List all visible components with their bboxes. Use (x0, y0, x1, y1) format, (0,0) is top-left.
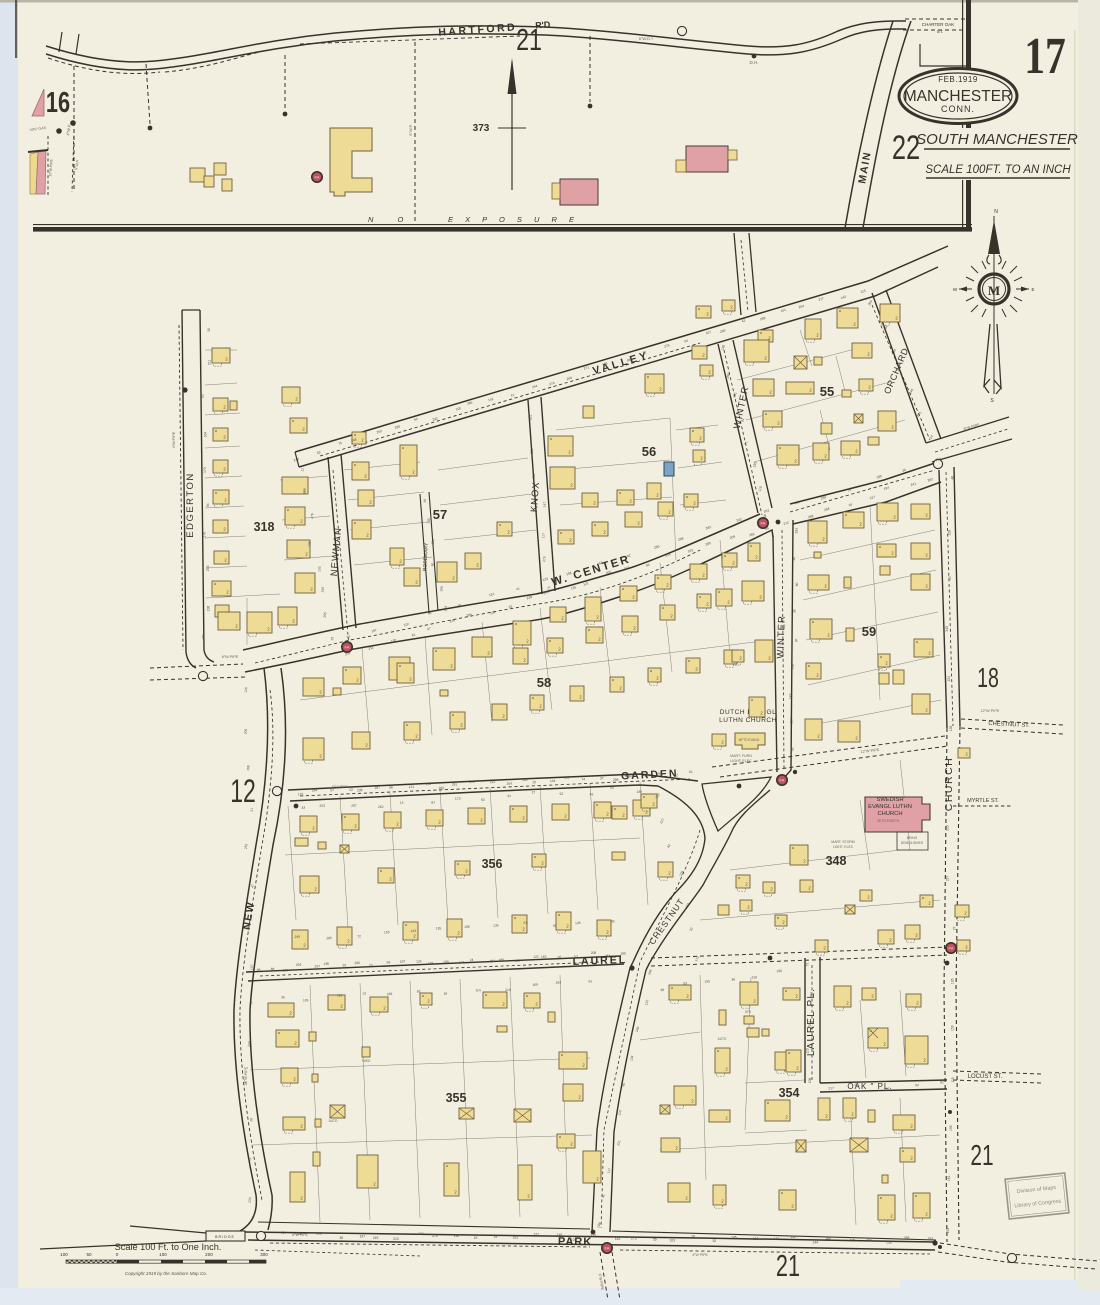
svg-text:127: 127 (533, 1233, 539, 1237)
svg-text:Copyright 1919 by the Sanborn: Copyright 1919 by the Sanborn Map Co. (125, 1271, 207, 1276)
svg-text:318: 318 (254, 520, 275, 534)
svg-text:GFS: GFS (745, 1010, 752, 1014)
svg-text:61: 61 (524, 921, 528, 925)
svg-text:33: 33 (330, 636, 334, 640)
svg-text:211: 211 (208, 360, 212, 365)
svg-text:254: 254 (605, 954, 611, 958)
svg-text:278: 278 (542, 556, 546, 562)
svg-text:219: 219 (505, 988, 511, 992)
svg-text:N: N (994, 209, 998, 215)
svg-text:137: 137 (250, 964, 254, 970)
svg-text:82: 82 (940, 1080, 944, 1084)
svg-text:62: 62 (674, 773, 678, 777)
svg-text:263: 263 (555, 980, 561, 984)
svg-text:56: 56 (387, 960, 391, 964)
svg-text:23: 23 (369, 963, 373, 967)
svg-text:270: 270 (547, 586, 551, 592)
svg-text:158: 158 (439, 586, 443, 592)
svg-text:SWEDISH: SWEDISH (876, 797, 903, 803)
svg-text:LIGHT: ELEC: LIGHT: ELEC (730, 759, 752, 763)
svg-text:53: 53 (574, 955, 578, 959)
svg-text:AUTO: AUTO (329, 1119, 338, 1123)
svg-text:94: 94 (206, 503, 210, 507)
svg-text:109: 109 (949, 1125, 953, 1131)
svg-text:BEING: BEING (907, 836, 918, 840)
svg-text:267: 267 (302, 489, 306, 495)
svg-text:207: 207 (351, 804, 357, 808)
svg-text:200: 200 (205, 1252, 213, 1257)
svg-text:245: 245 (294, 935, 300, 939)
svg-text:147: 147 (542, 502, 546, 508)
svg-text:135: 135 (436, 926, 442, 930)
svg-text:208: 208 (591, 951, 597, 955)
svg-text:121: 121 (409, 785, 415, 789)
svg-text:273: 273 (432, 1234, 438, 1238)
svg-text:300: 300 (260, 1252, 268, 1257)
svg-text:273: 273 (631, 1237, 637, 1241)
svg-text:18: 18 (691, 1234, 695, 1238)
svg-text:EDGERTON: EDGERTON (185, 472, 196, 538)
svg-text:SCALE 100FT. TO AN INCH: SCALE 100FT. TO AN INCH (925, 164, 1071, 176)
svg-text:115: 115 (951, 1077, 955, 1082)
svg-text:LOCUST ST.: LOCUST ST. (968, 1074, 1003, 1080)
svg-text:12″W PIPE: 12″W PIPE (981, 709, 1000, 713)
svg-text:89: 89 (340, 1236, 344, 1240)
svg-text:128: 128 (575, 921, 581, 925)
svg-text:50: 50 (86, 1252, 92, 1257)
svg-text:106: 106 (464, 925, 470, 929)
svg-text:238: 238 (357, 788, 363, 792)
svg-text:104: 104 (203, 432, 207, 438)
svg-text:MANCHESTER: MANCHESTER (904, 88, 1013, 105)
svg-text:159: 159 (951, 1025, 955, 1031)
svg-text:60: 60 (430, 562, 434, 566)
svg-text:12: 12 (230, 773, 256, 809)
svg-text:FA: FA (780, 778, 785, 783)
svg-text:192: 192 (454, 1234, 460, 1238)
svg-text:93: 93 (683, 981, 687, 985)
svg-text:259: 259 (296, 963, 302, 967)
svg-text:178: 178 (428, 961, 434, 965)
svg-text:56: 56 (642, 444, 656, 459)
svg-text:348: 348 (826, 854, 847, 868)
svg-text:28 TO EXIST’N: 28 TO EXIST’N (877, 819, 900, 823)
svg-text:MYRTLE ST.: MYRTLE ST. (967, 798, 999, 804)
svg-text:CONN.: CONN. (941, 104, 975, 114)
svg-text:170: 170 (298, 792, 304, 796)
svg-text:87: 87 (431, 801, 435, 805)
svg-text:10: 10 (557, 955, 561, 959)
svg-text:268: 268 (904, 1236, 910, 1240)
svg-text:153: 153 (201, 634, 205, 640)
svg-text:14: 14 (400, 801, 404, 805)
svg-text:204: 204 (506, 782, 512, 786)
svg-text:280: 280 (246, 925, 250, 931)
svg-text:196: 196 (776, 969, 782, 973)
svg-text:74: 74 (581, 777, 585, 781)
svg-text:204: 204 (810, 992, 814, 998)
svg-text:10: 10 (948, 576, 952, 580)
svg-text:213: 213 (393, 1237, 399, 1241)
svg-text:133: 133 (296, 1232, 302, 1236)
svg-text:24: 24 (470, 958, 474, 962)
svg-text:MART. STORM: MART. STORM (831, 840, 854, 844)
svg-text:49: 49 (423, 499, 427, 503)
svg-text:354: 354 (779, 1086, 800, 1100)
svg-text:6″W.D.?: 6″W.D.? (639, 36, 654, 41)
svg-text:62: 62 (553, 923, 557, 927)
svg-text:143: 143 (788, 693, 792, 699)
svg-text:DUTCH EVANGL: DUTCH EVANGL (720, 709, 776, 716)
svg-text:FA: FA (605, 1246, 610, 1251)
svg-text:230: 230 (469, 780, 475, 784)
svg-text:373: 373 (473, 123, 490, 134)
svg-text:285: 285 (326, 936, 332, 940)
svg-text:257: 257 (789, 718, 793, 724)
svg-text:92: 92 (343, 963, 347, 967)
svg-text:37: 37 (600, 776, 604, 780)
svg-text:87: 87 (249, 1000, 253, 1004)
svg-text:251: 251 (490, 959, 496, 963)
svg-text:264: 264 (439, 786, 445, 790)
svg-text:222: 222 (490, 780, 496, 784)
svg-text:6″W PIPE: 6″W PIPE (332, 785, 348, 789)
svg-text:27: 27 (531, 790, 535, 794)
svg-text:203: 203 (206, 565, 210, 571)
svg-text:29: 29 (443, 992, 447, 996)
svg-text:186: 186 (498, 958, 504, 962)
svg-text:61: 61 (588, 979, 592, 983)
svg-text:21: 21 (250, 808, 254, 812)
svg-text:109: 109 (443, 960, 449, 964)
svg-text:196: 196 (282, 968, 288, 972)
svg-text:147: 147 (774, 1237, 780, 1241)
svg-text:253: 253 (319, 804, 325, 808)
svg-text:262: 262 (378, 805, 384, 809)
svg-text:170: 170 (203, 467, 207, 473)
svg-text:73: 73 (806, 963, 810, 967)
svg-text:CHARTER OAK: CHARTER OAK (922, 22, 954, 27)
svg-text:155: 155 (704, 979, 710, 983)
svg-text:252: 252 (530, 448, 534, 454)
svg-text:173: 173 (455, 797, 461, 801)
svg-text:195: 195 (951, 978, 955, 984)
svg-text:FA: FA (315, 175, 320, 180)
svg-text:FEB.1919: FEB.1919 (938, 75, 978, 84)
svg-text:80: 80 (795, 582, 799, 586)
svg-text:189: 189 (387, 992, 393, 996)
svg-text:30: 30 (611, 919, 615, 923)
svg-text:82: 82 (417, 989, 421, 993)
svg-text:4″W PIPE: 4″W PIPE (692, 1253, 708, 1257)
svg-text:231: 231 (808, 1020, 812, 1026)
svg-text:SHED: SHED (362, 1059, 372, 1063)
svg-text:KNOX: KNOX (529, 481, 542, 513)
svg-text:6″W.PIPE: 6″W.PIPE (222, 655, 239, 659)
svg-text:46: 46 (951, 476, 955, 480)
svg-text:153: 153 (384, 930, 390, 934)
svg-text:57: 57 (433, 507, 447, 522)
svg-text:35: 35 (281, 995, 285, 999)
svg-text:52: 52 (713, 1239, 717, 1243)
svg-text:18: 18 (977, 663, 999, 694)
svg-text:36: 36 (731, 977, 735, 981)
svg-text:132: 132 (790, 1235, 796, 1239)
svg-text:136: 136 (426, 782, 432, 786)
svg-text:21: 21 (776, 1248, 800, 1283)
svg-text:96: 96 (389, 785, 393, 789)
svg-text:EVANGL LUTHN: EVANGL LUTHN (868, 804, 912, 810)
svg-text:57: 57 (330, 788, 334, 792)
svg-text:0: 0 (116, 1252, 119, 1257)
svg-text:248: 248 (443, 606, 447, 612)
svg-text:356: 356 (482, 857, 503, 871)
svg-text:206: 206 (243, 728, 247, 734)
svg-text:LIGHT. ELEC: LIGHT. ELEC (833, 845, 854, 849)
svg-text:FA: FA (761, 521, 766, 526)
svg-text:161: 161 (947, 1175, 951, 1181)
svg-text:38: 38 (207, 328, 211, 332)
svg-text:21: 21 (970, 1140, 993, 1172)
svg-text:101: 101 (866, 1239, 872, 1243)
svg-text:138: 138 (886, 1241, 892, 1245)
svg-text:4″W.PIPE: 4″W.PIPE (172, 431, 176, 448)
svg-text:61: 61 (689, 770, 693, 774)
svg-text:185: 185 (324, 962, 330, 966)
svg-text:107: 107 (645, 774, 651, 778)
svg-text:WINTER: WINTER (775, 615, 788, 659)
svg-text:93: 93 (658, 772, 662, 776)
svg-text:N O: N O (368, 215, 414, 224)
svg-text:130: 130 (317, 566, 321, 572)
svg-text:102: 102 (571, 1238, 577, 1242)
svg-text:M: M (988, 283, 1000, 298)
svg-text:126: 126 (459, 960, 465, 964)
svg-text:92: 92 (559, 792, 563, 796)
svg-text:43: 43 (301, 806, 305, 810)
svg-text:225: 225 (945, 825, 949, 831)
svg-text:161: 161 (513, 1235, 519, 1239)
svg-text:139: 139 (307, 541, 311, 547)
svg-text:167: 167 (945, 777, 949, 783)
svg-text:CHURCH: CHURCH (877, 811, 902, 817)
svg-text:50: 50 (481, 798, 485, 802)
svg-text:249: 249 (373, 1236, 379, 1240)
svg-text:255: 255 (323, 612, 327, 618)
svg-text:124: 124 (418, 1232, 424, 1236)
svg-text:103: 103 (669, 1238, 675, 1242)
svg-text:296: 296 (613, 778, 619, 782)
svg-text:115: 115 (850, 1239, 855, 1243)
svg-text:162: 162 (790, 664, 794, 670)
svg-text:169: 169 (825, 1236, 831, 1240)
svg-text:27: 27 (952, 926, 956, 930)
svg-text:165: 165 (427, 518, 431, 524)
svg-text:244: 244 (247, 1041, 251, 1047)
svg-text:355: 355 (446, 1091, 467, 1105)
svg-text:19: 19 (474, 1236, 478, 1240)
svg-text:283: 283 (564, 776, 570, 780)
svg-text:43: 43 (349, 788, 353, 792)
svg-text:257: 257 (314, 964, 320, 968)
svg-text:280: 280 (354, 961, 360, 965)
svg-text:142: 142 (615, 1237, 621, 1241)
svg-text:236: 236 (207, 606, 211, 612)
svg-text:197: 197 (360, 1235, 366, 1239)
svg-text:134: 134 (947, 676, 951, 682)
svg-text:46: 46 (257, 968, 261, 972)
svg-text:11: 11 (300, 468, 304, 472)
svg-text:109: 109 (303, 998, 309, 1002)
svg-text:217: 217 (884, 1087, 890, 1091)
svg-text:105: 105 (946, 1228, 950, 1234)
svg-text:17: 17 (1024, 28, 1066, 85)
svg-text:183: 183 (753, 1237, 759, 1241)
svg-text:16: 16 (46, 87, 70, 119)
svg-text:291: 291 (528, 415, 532, 421)
svg-text:13: 13 (362, 991, 366, 995)
svg-text:21: 21 (516, 22, 542, 57)
svg-text:269: 269 (532, 473, 536, 479)
svg-text:120: 120 (244, 687, 248, 693)
svg-text:245: 245 (321, 587, 325, 593)
svg-text:100: 100 (60, 1252, 68, 1257)
svg-text:90: 90 (854, 1083, 858, 1087)
svg-text:100: 100 (159, 1252, 167, 1257)
svg-text:252: 252 (244, 843, 248, 849)
svg-text:AUTO: AUTO (718, 1037, 727, 1041)
svg-text:19: 19 (494, 1235, 498, 1239)
svg-text:101: 101 (337, 993, 343, 997)
svg-text:122: 122 (533, 955, 539, 959)
svg-text:233: 233 (248, 1197, 252, 1203)
svg-text:97: 97 (794, 638, 798, 642)
svg-text:59: 59 (862, 624, 876, 639)
svg-text:108: 108 (947, 530, 951, 536)
svg-text:Scale 100 Ft. to One Inch.: Scale 100 Ft. to One Inch. (115, 1242, 222, 1252)
svg-text:291: 291 (452, 782, 458, 786)
svg-text:293: 293 (794, 528, 798, 534)
svg-text:245: 245 (945, 626, 949, 632)
svg-text:253: 253 (928, 1237, 934, 1241)
svg-text:35: 35 (792, 609, 796, 613)
svg-text:91: 91 (507, 794, 511, 798)
svg-text:188: 188 (515, 959, 521, 963)
svg-text:278: 278 (203, 532, 207, 538)
svg-text:117: 117 (541, 533, 545, 539)
svg-text:144: 144 (550, 779, 556, 783)
svg-text:95: 95 (790, 747, 794, 751)
svg-text:46: 46 (590, 792, 594, 796)
svg-text:E X P O S U R E: E X P O S U R E (448, 215, 579, 224)
svg-text:ST.: ST. (937, 29, 944, 34)
svg-text:BRIDGE: BRIDGE (215, 1235, 235, 1239)
svg-text:145: 145 (731, 1236, 737, 1240)
svg-text:63: 63 (629, 774, 633, 778)
svg-text:75: 75 (248, 1157, 252, 1161)
svg-text:93: 93 (915, 1083, 919, 1087)
svg-text:55: 55 (820, 384, 834, 399)
svg-text:MFTD EVANG: MFTD EVANG (739, 738, 760, 742)
svg-text:55: 55 (653, 1238, 657, 1242)
svg-text:E: E (1031, 287, 1034, 292)
svg-text:D.H.: D.H. (750, 60, 759, 65)
svg-text:LAUREL: LAUREL (572, 954, 627, 968)
svg-text:145: 145 (557, 1233, 563, 1237)
svg-text:47: 47 (251, 884, 255, 888)
svg-text:169: 169 (246, 765, 250, 771)
svg-text:29: 29 (249, 1118, 253, 1122)
svg-text:72: 72 (357, 934, 361, 938)
svg-text:264: 264 (312, 788, 318, 792)
svg-text:169: 169 (532, 983, 538, 987)
svg-text:6″W.P.: 6″W.P. (408, 124, 413, 136)
svg-text:58: 58 (537, 675, 551, 690)
svg-text:FA: FA (345, 645, 350, 650)
svg-text:LUTHN CHURCH: LUTHN CHURCH (719, 717, 777, 724)
svg-text:10: 10 (244, 1082, 248, 1086)
svg-text:136: 136 (949, 725, 953, 731)
svg-text:89: 89 (660, 988, 664, 992)
svg-text:86: 86 (271, 967, 275, 971)
svg-text:279: 279 (310, 513, 314, 519)
svg-text:100: 100 (522, 778, 528, 782)
svg-text:16: 16 (532, 780, 536, 784)
svg-text:227: 227 (946, 875, 950, 881)
svg-text:35: 35 (792, 557, 796, 561)
svg-text:108: 108 (808, 1078, 812, 1084)
svg-text:187: 187 (374, 786, 380, 790)
svg-text:165: 165 (316, 1232, 322, 1236)
svg-text:110: 110 (806, 1048, 810, 1053)
svg-text:182: 182 (541, 955, 547, 959)
svg-text:180: 180 (620, 952, 626, 956)
svg-text:FA: FA (949, 946, 954, 951)
svg-text:72: 72 (281, 1231, 285, 1235)
svg-text:59: 59 (610, 786, 614, 790)
svg-text:MART: FURN: MART: FURN (730, 754, 752, 758)
svg-text:256: 256 (431, 539, 435, 545)
svg-text:217: 217 (828, 1086, 834, 1090)
svg-text:135: 135 (493, 923, 499, 927)
svg-text:226: 226 (591, 1234, 597, 1238)
svg-text:DEMOLISHED: DEMOLISHED (901, 841, 924, 845)
svg-text:144: 144 (813, 1241, 819, 1245)
svg-text:124: 124 (416, 959, 422, 963)
svg-text:CHURCH: CHURCH (943, 757, 955, 812)
svg-text:197: 197 (400, 960, 406, 964)
svg-text:82: 82 (200, 394, 204, 398)
svg-text:SOUTH MANCHESTER: SOUTH MANCHESTER (916, 131, 1078, 148)
svg-text:192: 192 (752, 975, 758, 979)
svg-text:238: 238 (636, 790, 642, 794)
svg-text:143: 143 (410, 929, 416, 933)
svg-text:114: 114 (475, 988, 481, 992)
